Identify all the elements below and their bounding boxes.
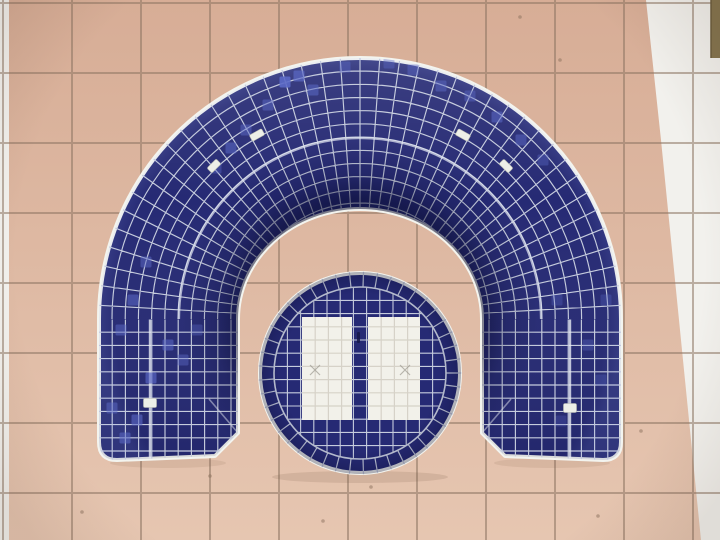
scene-svg	[0, 0, 720, 540]
vignette	[0, 0, 720, 540]
photo-frame	[0, 0, 720, 540]
